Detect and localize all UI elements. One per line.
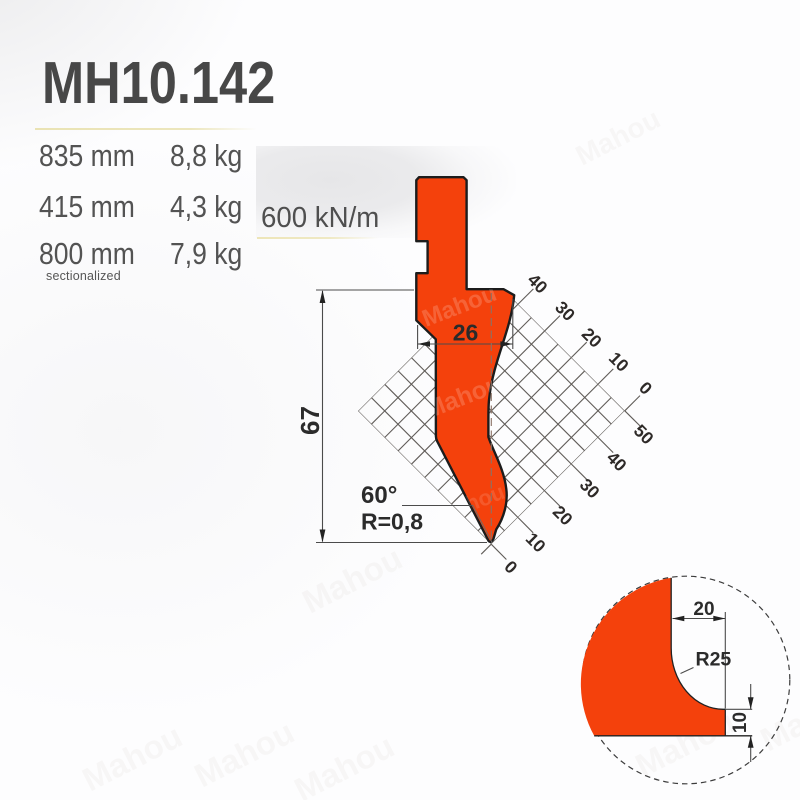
svg-text:40: 40	[524, 270, 552, 298]
svg-text:Mahou: Mahou	[296, 539, 408, 620]
svg-text:10: 10	[522, 528, 550, 556]
svg-text:R=0,8: R=0,8	[361, 509, 423, 535]
svg-text:30: 30	[576, 474, 604, 502]
svg-text:0: 0	[500, 557, 521, 578]
svg-text:40: 40	[603, 447, 631, 475]
svg-text:26: 26	[453, 320, 479, 346]
svg-text:20: 20	[549, 501, 577, 529]
svg-text:60°: 60°	[361, 482, 397, 509]
svg-text:Mahou: Mahou	[76, 717, 188, 798]
svg-text:20: 20	[578, 324, 606, 352]
svg-text:Mahou: Mahou	[288, 727, 400, 800]
svg-text:10: 10	[605, 348, 633, 376]
svg-text:20: 20	[693, 599, 714, 620]
svg-text:Mahou: Mahou	[188, 713, 300, 794]
svg-text:67: 67	[295, 406, 325, 435]
svg-text:Mahou: Mahou	[571, 103, 665, 172]
svg-text:Mahou: Mahou	[754, 677, 800, 758]
svg-text:10: 10	[730, 712, 751, 733]
svg-text:0: 0	[635, 378, 656, 399]
svg-text:R25: R25	[696, 649, 732, 671]
svg-text:50: 50	[630, 420, 658, 448]
